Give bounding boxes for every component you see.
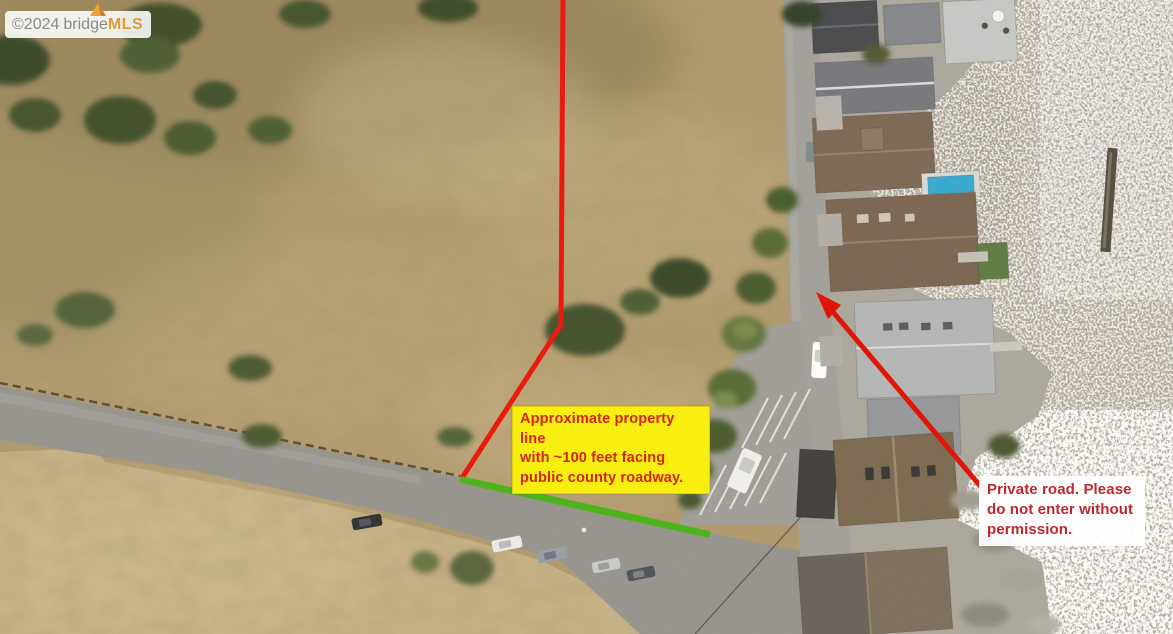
- mls-mountain-logo-icon: [88, 1, 110, 16]
- watermark-year: ©2024: [12, 16, 59, 34]
- watermark-brand-mls: MLS: [108, 16, 143, 34]
- aerial-photo: ©2024bridgeMLS Approximate property line…: [0, 0, 1173, 634]
- mls-watermark: ©2024bridgeMLS: [5, 11, 151, 38]
- private-road-label: Private road. Please do not enter withou…: [979, 476, 1145, 546]
- watermark-brand: bridge: [63, 16, 107, 34]
- property-line-label: Approximate property line with ~100 feet…: [512, 406, 710, 494]
